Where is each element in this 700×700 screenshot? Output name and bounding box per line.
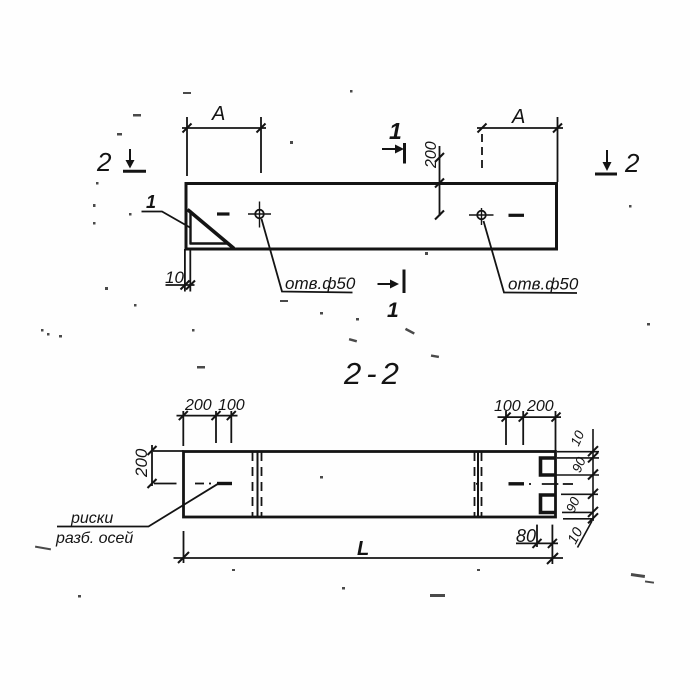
svg-text:отв.ф50: отв.ф50 — [508, 275, 579, 294]
svg-text:2: 2 — [96, 147, 112, 177]
svg-text:1: 1 — [389, 118, 402, 144]
svg-text:1: 1 — [146, 192, 156, 212]
svg-text:2-2: 2-2 — [343, 356, 404, 391]
svg-text:1: 1 — [387, 299, 399, 322]
svg-text:A: A — [511, 106, 525, 128]
svg-text:L: L — [357, 538, 369, 560]
svg-text:10: 10 — [165, 268, 184, 287]
svg-text:отв.ф50: отв.ф50 — [285, 274, 356, 293]
svg-text:разб. осей: разб. осей — [55, 530, 133, 547]
svg-text:200: 200 — [184, 397, 212, 414]
svg-text:риски: риски — [70, 510, 113, 527]
svg-text:A: A — [211, 103, 225, 125]
svg-text:10: 10 — [568, 428, 588, 448]
svg-text:200: 200 — [526, 398, 554, 415]
svg-text:100: 100 — [494, 398, 521, 415]
svg-text:200: 200 — [132, 448, 151, 478]
svg-text:2: 2 — [624, 148, 640, 178]
svg-text:10: 10 — [565, 525, 587, 547]
svg-text:200: 200 — [423, 141, 440, 169]
